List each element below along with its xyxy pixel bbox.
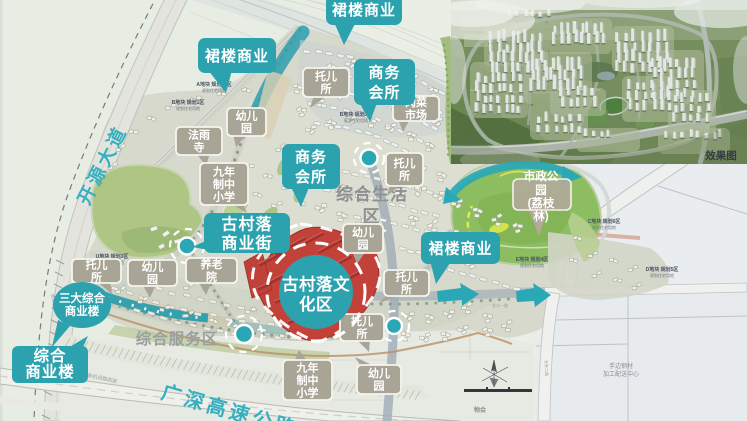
svg-text:幼儿: 幼儿	[236, 109, 258, 123]
svg-text:市场: 市场	[405, 108, 427, 122]
svg-text:化区: 化区	[299, 294, 333, 314]
svg-text:园: 园	[374, 380, 385, 393]
svg-text:所: 所	[91, 270, 102, 284]
svg-text:小学: 小学	[296, 385, 319, 399]
svg-text:规划住宅用地: 规划住宅用地	[592, 224, 616, 230]
svg-text:裙楼商业: 裙楼商业	[205, 47, 269, 65]
svg-text:商业楼: 商业楼	[25, 362, 75, 381]
svg-text:加工配送中心: 加工配送中心	[603, 370, 639, 378]
svg-text:物会: 物会	[474, 406, 487, 414]
svg-text:规划住宅用地: 规划住宅用地	[176, 105, 200, 111]
svg-text:制中: 制中	[297, 373, 319, 387]
svg-text:综合: 综合	[33, 346, 66, 365]
svg-text:幼儿: 幼儿	[142, 260, 164, 274]
svg-text:园: 园	[241, 122, 252, 135]
svg-text:商务: 商务	[368, 63, 400, 81]
svg-text:制中: 制中	[213, 177, 235, 191]
svg-text:小学: 小学	[212, 189, 235, 203]
svg-text:托儿: 托儿	[394, 156, 416, 170]
svg-text:长安二路: 长安二路	[544, 360, 551, 376]
svg-text:金沙一路: 金沙一路	[492, 302, 508, 308]
svg-text:规划住宅用地: 规划住宅用地	[650, 272, 674, 278]
svg-text:园: 园	[535, 183, 547, 197]
svg-text:C地块 规划6区: C地块 规划6区	[588, 218, 621, 225]
svg-text:市政公: 市政公	[524, 169, 559, 183]
svg-text:(荔枝: (荔枝	[528, 196, 555, 210]
svg-text:会所: 会所	[295, 168, 327, 186]
svg-text:所: 所	[321, 82, 332, 96]
svg-text:院: 院	[206, 270, 217, 284]
svg-text:综合服务区: 综合服务区	[136, 329, 219, 348]
svg-text:古村落文: 古村落文	[282, 274, 350, 294]
svg-text:手边钢材: 手边钢材	[609, 362, 633, 370]
svg-text:所: 所	[399, 169, 410, 183]
svg-text:会所: 会所	[368, 83, 400, 101]
svg-text:九年: 九年	[296, 360, 319, 374]
svg-text:所: 所	[357, 327, 368, 341]
svg-text:商务: 商务	[295, 148, 327, 166]
svg-text:幼儿: 幼儿	[368, 366, 390, 380]
svg-text:商业街: 商业街	[221, 233, 272, 252]
svg-text:D地块 规划5区: D地块 规划5区	[646, 266, 679, 273]
svg-text:寺: 寺	[194, 140, 205, 154]
svg-text:B地块 规划1区: B地块 规划1区	[172, 99, 205, 106]
svg-text:养老: 养老	[200, 257, 223, 271]
svg-text:九年: 九年	[212, 164, 235, 178]
svg-text:托儿: 托儿	[86, 258, 108, 272]
svg-text:园: 园	[358, 239, 369, 252]
svg-text:托儿: 托儿	[315, 69, 337, 83]
svg-text:三大综合: 三大综合	[59, 291, 105, 305]
svg-text:规划住宅用地: 规划住宅用地	[344, 117, 368, 123]
svg-text:园: 园	[147, 273, 158, 286]
svg-text:裙楼商业: 裙楼商业	[428, 239, 492, 257]
svg-text:规划住宅用地: 规划住宅用地	[520, 262, 544, 268]
svg-text:古村落: 古村落	[221, 214, 272, 233]
svg-text:林): 林)	[533, 209, 548, 223]
svg-text:效果图: 效果图	[705, 149, 737, 162]
svg-text:商业楼: 商业楼	[65, 304, 100, 318]
svg-text:E地块 规划4区: E地块 规划4区	[516, 256, 549, 263]
svg-text:托儿: 托儿	[396, 270, 418, 284]
svg-text:所: 所	[401, 282, 412, 296]
svg-text:法雨: 法雨	[188, 128, 210, 142]
svg-text:裙楼商业: 裙楼商业	[332, 1, 396, 19]
svg-text:幼儿: 幼儿	[352, 225, 374, 239]
